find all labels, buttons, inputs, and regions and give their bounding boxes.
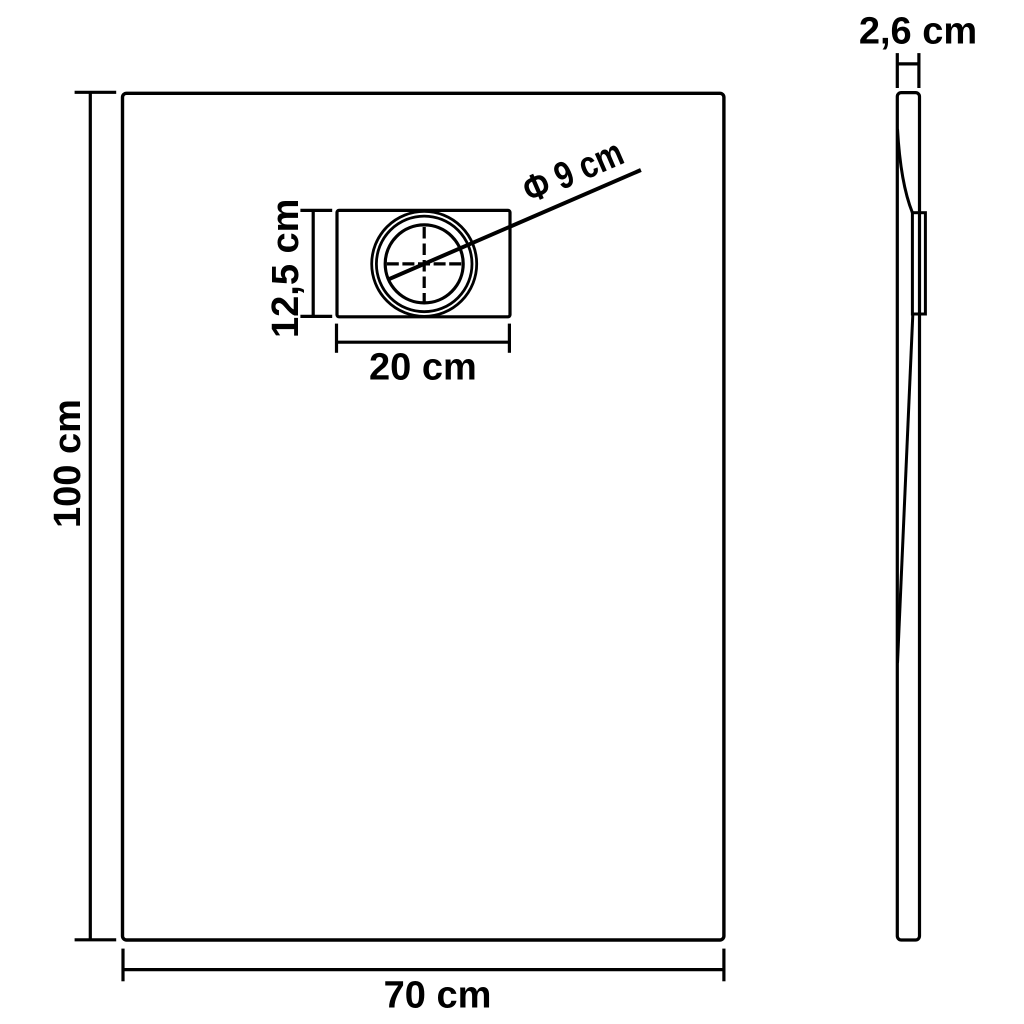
svg-text:100 cm: 100 cm [47, 399, 89, 528]
svg-text:12,5 cm: 12,5 cm [265, 199, 307, 338]
svg-text:20 cm: 20 cm [369, 347, 477, 389]
svg-text:70 cm: 70 cm [384, 975, 492, 1017]
svg-text:2,6 cm: 2,6 cm [859, 11, 977, 53]
